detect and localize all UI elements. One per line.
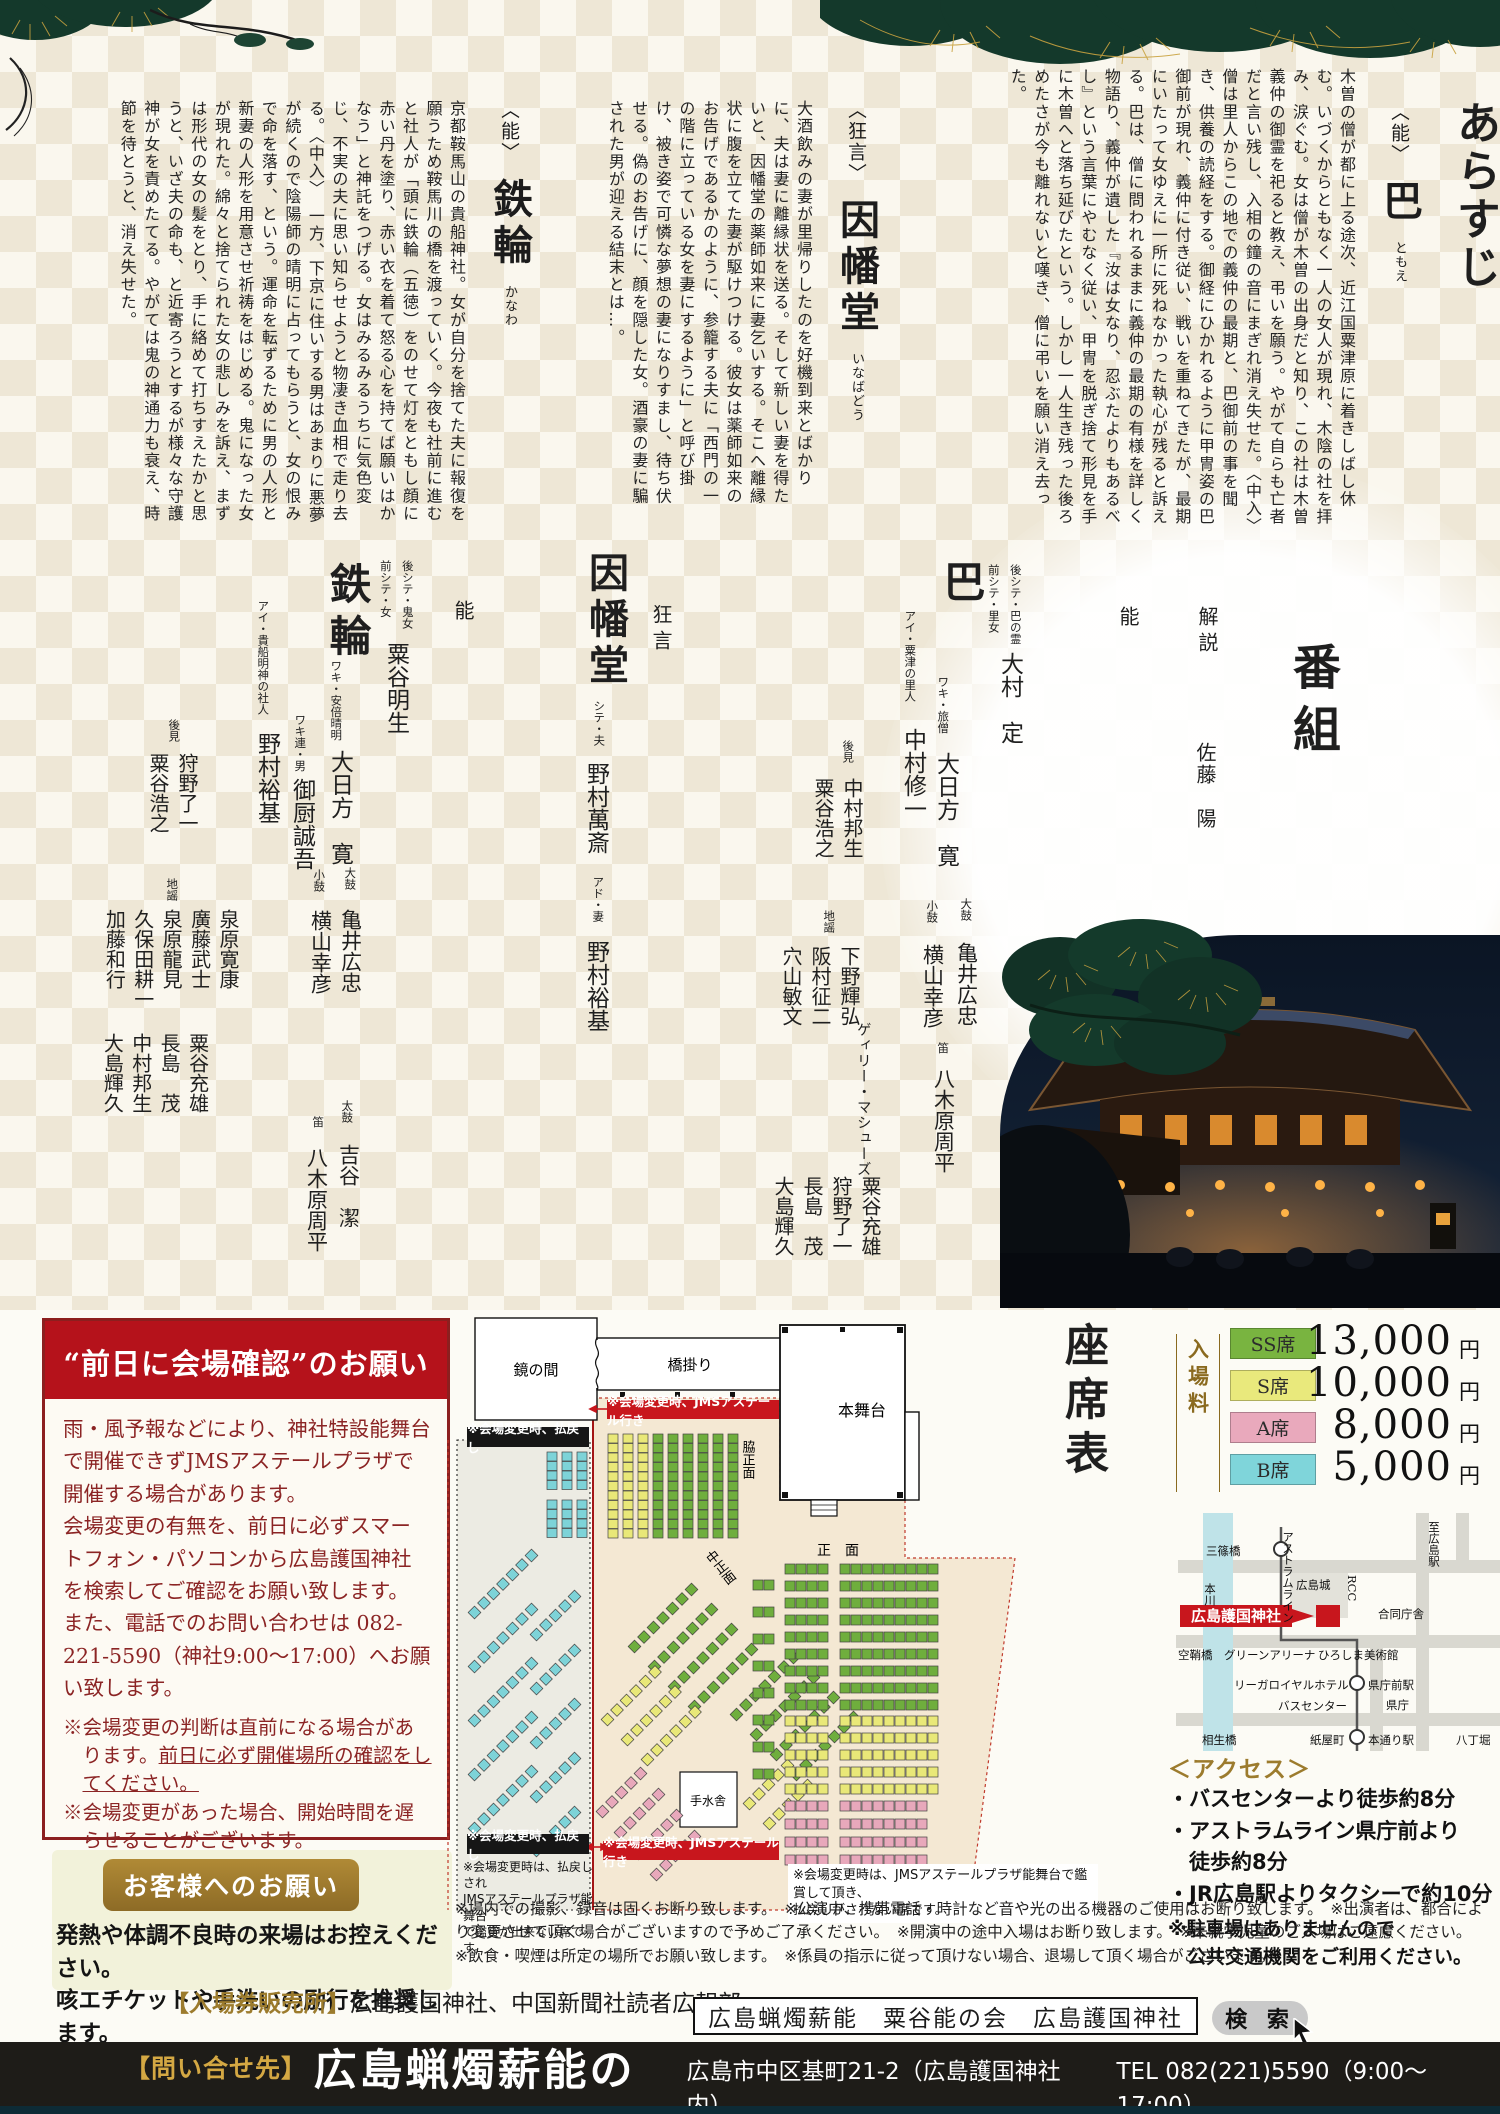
seat-ss xyxy=(818,1632,828,1642)
seat-s xyxy=(840,1767,850,1777)
seat-s xyxy=(623,1434,633,1443)
contact-label: 【問い合せ先】 xyxy=(125,2049,300,2085)
seat-ss xyxy=(728,1434,738,1443)
seat-b xyxy=(562,1519,572,1528)
seat-s xyxy=(796,1750,806,1760)
seat-s xyxy=(818,1733,828,1743)
seat-ss xyxy=(873,1598,883,1608)
synopsis-inabado-body: 大酒飲みの妻が里帰りしたのを好機到来とばかりに、夫は妻に離縁状を送る。そして新し… xyxy=(603,100,815,515)
tomoe-waki-role: ワキ・旅僧 xyxy=(934,676,951,734)
tomoe-fue-label: 笛 xyxy=(934,1042,951,1054)
seat-a xyxy=(884,1801,894,1811)
seat-ss xyxy=(698,1453,708,1462)
seat-a xyxy=(785,1819,795,1829)
seat-ss xyxy=(785,1598,795,1608)
seat-s xyxy=(851,1733,861,1743)
seat-a xyxy=(840,1837,850,1847)
map-label-astramline: アストラムライン xyxy=(1281,1531,1295,1623)
seat-s xyxy=(917,1716,927,1726)
seat-s xyxy=(807,1767,817,1777)
seat-s xyxy=(928,1750,938,1760)
seat-ss xyxy=(683,1453,693,1462)
chart-red-label-top: ※会場変更時、JMSアステール行き xyxy=(607,1400,779,1419)
seat-ss xyxy=(818,1666,828,1676)
seat-ss xyxy=(807,1649,817,1659)
seat-s xyxy=(638,1482,648,1491)
seat-s xyxy=(873,1733,883,1743)
seat-ss xyxy=(851,1598,861,1608)
seat-ss xyxy=(818,1700,828,1710)
tomoe-jiutai-3: 粟谷充雄 狩野了一 長島 茂 大島輝久 xyxy=(768,1176,884,1256)
seat-ss xyxy=(796,1615,806,1625)
seat-ss xyxy=(764,1607,774,1617)
seat-s xyxy=(638,1529,648,1538)
kanawa-jiutai-label: 地謡 xyxy=(163,878,180,901)
seat-ss xyxy=(728,1501,738,1510)
seat-a xyxy=(895,1801,905,1811)
kanawa-koken: 狩野了一 粟谷浩之 xyxy=(143,753,201,833)
map-label-kencho: 県庁 xyxy=(1386,1698,1409,1712)
seat-s xyxy=(807,1733,817,1743)
seat-s xyxy=(862,1750,872,1760)
access-map: 広島護国神社 三篠橋 至広島駅 本川 アストラムライン 広島城 RCC 合同庁舎… xyxy=(1138,1513,1500,1751)
seat-b xyxy=(547,1510,557,1519)
seat-ss xyxy=(785,1649,795,1659)
play-title: 巴 xyxy=(1376,180,1423,226)
venue-warning-p3: また、電話でのお問い合わせは 082-221-5590（神社9:00～17:00… xyxy=(45,1607,447,1704)
ss-seat-price: 13,000 xyxy=(1272,1318,1452,1364)
seat-s xyxy=(785,1716,795,1726)
seat-ss xyxy=(653,1444,663,1453)
seat-a xyxy=(807,1819,817,1829)
seat-ss xyxy=(928,1700,938,1710)
seat-ss xyxy=(928,1649,938,1659)
seat-ss xyxy=(884,1649,894,1659)
seat-ss xyxy=(807,1632,817,1642)
map-label-castle: 広島城 xyxy=(1296,1578,1331,1592)
kanawa-wakitsure: 御厨誠吾 xyxy=(284,778,319,870)
seat-s xyxy=(928,1784,938,1794)
seat-ss xyxy=(764,1715,774,1725)
seat-ss xyxy=(906,1615,916,1625)
seat-ss xyxy=(728,1463,738,1472)
seat-a xyxy=(807,1801,817,1811)
seat-ss xyxy=(807,1564,817,1574)
seat-s xyxy=(884,1716,894,1726)
seat-a xyxy=(884,1837,894,1847)
seat-ss xyxy=(653,1491,663,1500)
kyogen-label: 狂言 xyxy=(646,604,676,656)
seat-a xyxy=(906,1837,916,1847)
seat-ss xyxy=(928,1598,938,1608)
seat-a xyxy=(917,1801,927,1811)
seat-ss xyxy=(873,1632,883,1642)
seat-ss xyxy=(873,1649,883,1659)
seat-ss xyxy=(713,1444,723,1453)
price-row-s: S席 10,000 円 xyxy=(1230,1368,1480,1402)
seat-ss xyxy=(683,1482,693,1491)
seat-a xyxy=(796,1837,806,1847)
map-label-rihga: リーガロイヤルホテル xyxy=(1234,1678,1349,1692)
play-reading: ともえ xyxy=(1392,241,1407,283)
seat-ss xyxy=(683,1501,693,1510)
seat-ss xyxy=(668,1453,678,1462)
seat-ss xyxy=(668,1472,678,1481)
seat-ss xyxy=(728,1482,738,1491)
seat-ss xyxy=(895,1666,905,1676)
seat-ss xyxy=(698,1472,708,1481)
kanawa-kotsuzumi-label: 小鼓 xyxy=(310,869,327,892)
seat-ss xyxy=(884,1632,894,1642)
seat-ss xyxy=(862,1615,872,1625)
seat-ss xyxy=(668,1491,678,1500)
noh-label-2: 能 xyxy=(448,600,478,620)
seat-ss xyxy=(928,1666,938,1676)
kanawa-heading: 鉄輪 xyxy=(316,562,379,666)
seat-ss xyxy=(785,1632,795,1642)
tomoe-otsuzumi-label: 大鼓 xyxy=(957,898,974,921)
price-row-ss: SS席 13,000 円 xyxy=(1230,1326,1480,1360)
seat-ss xyxy=(785,1581,795,1591)
seat-ss xyxy=(884,1666,894,1676)
seat-s xyxy=(796,1733,806,1743)
tomoe-ai-role: アイ・粟津の里人 xyxy=(901,610,918,702)
seat-ss xyxy=(928,1564,938,1574)
seat-s xyxy=(862,1767,872,1777)
yen-unit: 円 xyxy=(1459,1460,1480,1490)
seat-ss xyxy=(683,1463,693,1472)
seat-s xyxy=(608,1501,618,1510)
seat-s xyxy=(608,1434,618,1443)
inabado-shite-role: シテ・夫 xyxy=(590,700,607,746)
seat-b xyxy=(562,1481,572,1490)
seat-ss xyxy=(753,1742,763,1752)
seat-s xyxy=(807,1716,817,1726)
seat-b xyxy=(547,1529,557,1538)
seat-ss xyxy=(668,1529,678,1538)
bridge-label: 橋掛り xyxy=(667,1356,712,1374)
seat-ss xyxy=(796,1564,806,1574)
seat-s xyxy=(928,1767,938,1777)
inabado-shite: 野村萬斎 xyxy=(578,762,613,854)
seat-a xyxy=(851,1819,861,1829)
flyer-page: あらすじ 〈能〉 巴 ともえ 木曽の僧が都に上る途次、近江国粟津原に着きしばし休… xyxy=(0,0,1500,2114)
seat-ss xyxy=(653,1529,663,1538)
seat-ss xyxy=(928,1683,938,1693)
venue-warning-box: “前日に会場確認”のお願い 雨・風予報などにより、神社特設能舞台で開催できずJM… xyxy=(42,1318,450,1840)
seat-ss xyxy=(728,1529,738,1538)
seat-ss xyxy=(862,1581,872,1591)
kanawa-kotsuzumi: 横山幸彦 xyxy=(304,910,336,994)
seat-ss xyxy=(698,1491,708,1500)
tomoe-kotsuzumi: 横山幸彦 xyxy=(916,944,948,1028)
seat-ss xyxy=(764,1742,774,1752)
seat-ss xyxy=(668,1444,678,1453)
genre-label: 〈狂言〉 xyxy=(845,100,867,184)
seat-ss xyxy=(862,1564,872,1574)
seat-s xyxy=(873,1750,883,1760)
seat-ss xyxy=(796,1649,806,1659)
seat-ss xyxy=(668,1510,678,1519)
seat-s xyxy=(862,1716,872,1726)
synopsis-kanawa: 〈能〉 鉄輪 かなわ 京都鞍馬山の貴船神社。女が自分を捨てた夫に報復を願うため鞍… xyxy=(115,100,538,530)
seat-ss xyxy=(862,1683,872,1693)
seat-ss xyxy=(928,1632,938,1642)
seat-ss xyxy=(840,1649,850,1659)
seat-ss xyxy=(796,1683,806,1693)
seat-ss xyxy=(668,1482,678,1491)
tomoe-fue: 八木原周平 xyxy=(927,1068,959,1173)
seat-s xyxy=(851,1750,861,1760)
ticket-sellers-line: 【入場券販売所】広島護国神社、中国新聞社読者広報部 xyxy=(166,1984,741,2018)
kanawa-wakitsure-role: ワキ連・男 xyxy=(291,714,308,772)
seat-s xyxy=(785,1784,795,1794)
seat-ss xyxy=(683,1434,693,1443)
seat-ss xyxy=(753,1715,763,1725)
seat-ss xyxy=(796,1700,806,1710)
seat-b xyxy=(577,1529,587,1538)
seat-ss xyxy=(862,1598,872,1608)
seat-s xyxy=(608,1529,618,1538)
seat-ss xyxy=(728,1453,738,1462)
access-item-1: ・バスセンターより徒歩約8分 xyxy=(1168,1784,1498,1816)
seat-s xyxy=(917,1784,927,1794)
seat-s xyxy=(638,1444,648,1453)
seat-ss xyxy=(862,1700,872,1710)
mirror-room-label: 鏡の間 xyxy=(513,1361,558,1379)
seat-ss xyxy=(917,1615,927,1625)
genre-label: 〈能〉 xyxy=(498,100,520,163)
seat-ss xyxy=(683,1491,693,1500)
seat-s xyxy=(623,1472,633,1481)
seat-ss xyxy=(851,1632,861,1642)
contact-bar: 【問い合せ先】 広島蝋燭薪能の会 広島市中区基町21-2（広島護国神社 内） T… xyxy=(0,2042,1500,2106)
seat-ss xyxy=(873,1683,883,1693)
tomoe-koken-label: 後見 xyxy=(839,740,856,763)
seat-ss xyxy=(698,1482,708,1491)
seat-a xyxy=(895,1837,905,1847)
inabado-heading: 因幡堂 xyxy=(575,552,635,690)
seat-ss xyxy=(840,1598,850,1608)
seat-ss xyxy=(807,1683,817,1693)
seat-a xyxy=(873,1819,883,1829)
seat-s xyxy=(608,1491,618,1500)
seat-s xyxy=(796,1784,806,1794)
seat-a xyxy=(917,1837,927,1847)
seat-s xyxy=(928,1716,938,1726)
chart-black-label-bottom: ※会場変更時、払戻し xyxy=(467,1834,589,1854)
bottom-notes-p1: ※場内での撮影、録音は固くお断り致します。 ※公演中、携帯電話・時計など音や光の… xyxy=(455,1898,1497,1945)
kanawa-shite-roles: 後シテ・鬼女 前シテ・女 xyxy=(374,560,418,629)
seat-ss xyxy=(653,1434,663,1443)
genre-label: 〈能〉 xyxy=(1388,102,1410,165)
seat-ss xyxy=(895,1598,905,1608)
seat-ss xyxy=(884,1683,894,1693)
seat-ss xyxy=(906,1649,916,1659)
map-label-honkawa: 本川 xyxy=(1203,1582,1217,1606)
seat-ss xyxy=(906,1700,916,1710)
seat-b xyxy=(577,1462,587,1471)
yen-unit: 円 xyxy=(1459,1418,1480,1448)
seat-s xyxy=(608,1510,618,1519)
seat-s xyxy=(796,1767,806,1777)
seat-ss xyxy=(862,1632,872,1642)
seat-ss xyxy=(753,1769,763,1779)
access-title: ＜アクセス＞ xyxy=(1168,1750,1498,1784)
play-title: 鉄輪 xyxy=(486,178,533,270)
seat-s xyxy=(638,1453,648,1462)
seat-ss xyxy=(698,1444,708,1453)
seat-s xyxy=(638,1434,648,1443)
map-label-godochosha: 合同庁舎 xyxy=(1378,1607,1424,1621)
kanawa-taiko-label: 太鼓 xyxy=(338,1100,355,1123)
seat-ss xyxy=(862,1649,872,1659)
seat-a xyxy=(818,1801,828,1811)
seat-b xyxy=(577,1510,587,1519)
seat-s xyxy=(807,1784,817,1794)
seat-s xyxy=(873,1716,883,1726)
bottom-notes-p2: ※飲食・喫煙は所定の場所でお願い致します。 ※係員の指示に従って頂けない場合、退… xyxy=(455,1945,1497,1968)
tomoe-waki: 大日方 寛 xyxy=(928,752,963,867)
seat-s xyxy=(873,1784,883,1794)
seat-s xyxy=(917,1767,927,1777)
synopsis-kanawa-body: 京都鞍馬山の貴船神社。女が自分を捨てた夫に報復を願うため鞍馬川の橋を渡っていく。… xyxy=(115,100,468,530)
admission-fee-label: 入場料 xyxy=(1176,1334,1220,1492)
seat-ss xyxy=(713,1491,723,1500)
seat-s xyxy=(608,1453,618,1462)
seat-ss xyxy=(713,1434,723,1443)
seat-ss xyxy=(851,1666,861,1676)
seat-ss xyxy=(807,1700,817,1710)
search-input[interactable]: 広島蝋燭薪能 粟谷能の会 広島護国神社 xyxy=(693,1997,1198,2035)
seat-a xyxy=(840,1801,850,1811)
venue-warning-note2: ※会場変更があった場合、開始時間を遅らせることがございます。 xyxy=(65,1797,448,1854)
seat-s xyxy=(895,1733,905,1743)
seat-ss xyxy=(728,1510,738,1519)
seat-s xyxy=(873,1767,883,1777)
map-label-rcc: RCC xyxy=(1345,1575,1359,1601)
seat-ss xyxy=(683,1472,693,1481)
seat-ss xyxy=(713,1529,723,1538)
seat-s xyxy=(840,1784,850,1794)
shomen-label: 正 面 xyxy=(817,1543,859,1559)
kanawa-ai: 野村裕基 xyxy=(249,732,284,824)
seat-ss xyxy=(895,1615,905,1625)
map-label-artmuseum: ひろしま美術館 xyxy=(1318,1648,1399,1662)
seat-s xyxy=(917,1750,927,1760)
seat-ss xyxy=(873,1700,883,1710)
seat-ss xyxy=(917,1598,927,1608)
seat-ss xyxy=(851,1615,861,1625)
seat-s xyxy=(906,1716,916,1726)
seat-s xyxy=(895,1716,905,1726)
yen-unit: 円 xyxy=(1459,1334,1480,1364)
seat-b xyxy=(562,1471,572,1480)
map-label-kamiyacho: 紙屋町 xyxy=(1310,1733,1345,1747)
seat-a xyxy=(862,1819,872,1829)
seat-ss xyxy=(668,1520,678,1529)
a-seat-price: 8,000 xyxy=(1272,1402,1452,1448)
seat-ss xyxy=(728,1444,738,1453)
seat-ss xyxy=(653,1482,663,1491)
seat-s xyxy=(608,1520,618,1529)
kanawa-ai-role: アイ・貴船明神の社人 xyxy=(254,600,271,715)
access-item-2a: ・アストラムライン県庁前より xyxy=(1168,1816,1498,1848)
seat-ss xyxy=(851,1700,861,1710)
seat-s xyxy=(807,1750,817,1760)
seat-ss xyxy=(840,1632,850,1642)
ticket-sellers-value: 広島護国神社、中国新聞社読者広報部 xyxy=(350,1991,741,2017)
seat-ss xyxy=(785,1666,795,1676)
seat-ss xyxy=(884,1564,894,1574)
seat-b xyxy=(577,1519,587,1528)
seat-s xyxy=(608,1482,618,1491)
seat-ss xyxy=(906,1683,916,1693)
seat-s xyxy=(906,1784,916,1794)
synopsis-kanawa-heading: 〈能〉 鉄輪 かなわ xyxy=(480,100,538,530)
seat-a xyxy=(851,1837,861,1847)
seat-ss xyxy=(796,1581,806,1591)
seat-s xyxy=(608,1444,618,1453)
play-reading: かなわ xyxy=(502,285,517,327)
seat-ss xyxy=(840,1564,850,1574)
seat-s xyxy=(638,1510,648,1519)
seat-ss xyxy=(917,1700,927,1710)
seat-ss xyxy=(818,1581,828,1591)
venue-warning-title: “前日に会場確認”のお願い xyxy=(45,1321,447,1399)
seat-ss xyxy=(764,1634,774,1644)
seat-ss xyxy=(928,1615,938,1625)
seat-ss xyxy=(785,1700,795,1710)
seat-ss xyxy=(851,1649,861,1659)
seat-ss xyxy=(840,1581,850,1591)
kanawa-otsuzumi-label: 大鼓 xyxy=(341,867,358,890)
play-reading: いなばどう xyxy=(849,352,864,422)
kanawa-jiutai-2: 粟谷充雄 長島 茂 中村邦生 大島輝久 xyxy=(98,1033,212,1113)
seat-ss xyxy=(796,1598,806,1608)
seat-s xyxy=(623,1510,633,1519)
seat-ss xyxy=(917,1632,927,1642)
seat-ss xyxy=(840,1683,850,1693)
seat-b xyxy=(577,1500,587,1509)
seat-a xyxy=(906,1819,916,1829)
seat-s xyxy=(623,1463,633,1472)
seat-b xyxy=(547,1462,557,1471)
synopsis-tomoe: 〈能〉 巴 ともえ 木曽の僧が都に上る途次、近江国粟津原に着きしばし休む。いづく… xyxy=(1005,68,1428,528)
inabado-ado-role: アド・妻 xyxy=(589,876,606,922)
seat-ss xyxy=(683,1520,693,1529)
seat-ss xyxy=(807,1615,817,1625)
seat-a xyxy=(818,1837,828,1847)
access-item-2b: 徒歩約8分 xyxy=(1168,1847,1498,1879)
seat-ss xyxy=(917,1564,927,1574)
synopsis-title: あらすじ xyxy=(1441,100,1500,292)
seat-ss xyxy=(713,1501,723,1510)
synopsis-tomoe-heading: 〈能〉 巴 ともえ xyxy=(1370,68,1428,528)
seat-ss xyxy=(713,1520,723,1529)
tomoe-shite-roles: 後シテ・巴の霊 前シテ・里女 xyxy=(982,564,1026,645)
seat-chart-title: 座席表 xyxy=(1049,1322,1115,1484)
seat-s xyxy=(906,1733,916,1743)
main-stage-label: 本舞台 xyxy=(838,1401,886,1420)
kanawa-fue: 八木原周平 xyxy=(300,1147,332,1252)
seat-ss xyxy=(653,1510,663,1519)
seat-ss xyxy=(698,1529,708,1538)
seat-ss xyxy=(785,1683,795,1693)
seat-s xyxy=(895,1767,905,1777)
seat-a xyxy=(796,1801,806,1811)
seat-b xyxy=(577,1481,587,1490)
